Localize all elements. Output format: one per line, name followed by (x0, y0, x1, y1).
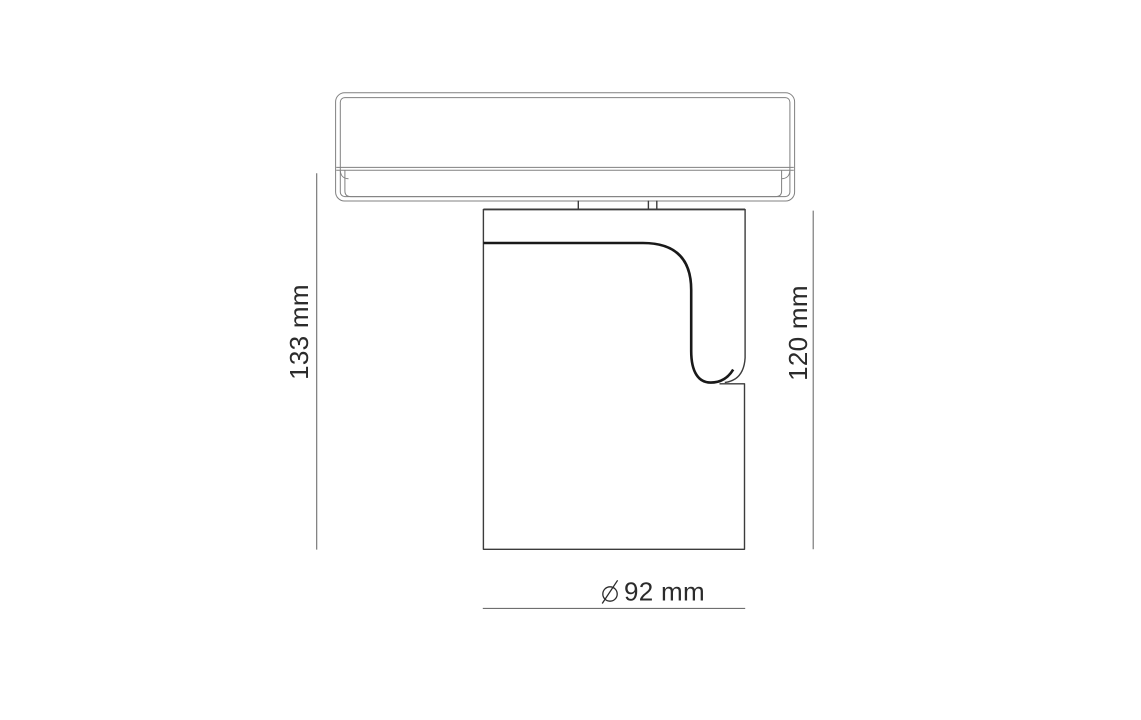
mounting-stems (578, 201, 657, 210)
dim-label-overall-height: 133 mm (286, 284, 312, 380)
track-profile (336, 93, 795, 201)
track-outer-edge (336, 93, 795, 201)
dim-label-diameter: 92 mm (599, 578, 705, 605)
luminaire-line-drawing (0, 0, 1141, 720)
body-right-edge (725, 209, 745, 383)
dimension-lines (317, 173, 814, 608)
adapter-outline (345, 170, 782, 196)
drawing-canvas: 133 mm 120 mm 92 mm (0, 0, 1141, 720)
body-outline (483, 209, 744, 549)
diameter-icon (599, 578, 622, 605)
swivel-slot-curve (483, 243, 733, 383)
luminaire-body (483, 209, 745, 549)
dim-label-body-height: 120 mm (785, 285, 811, 381)
dim-label-diameter-value: 92 mm (624, 578, 705, 604)
adapter-hook-right (782, 171, 790, 179)
track-inner-edge (340, 98, 790, 197)
